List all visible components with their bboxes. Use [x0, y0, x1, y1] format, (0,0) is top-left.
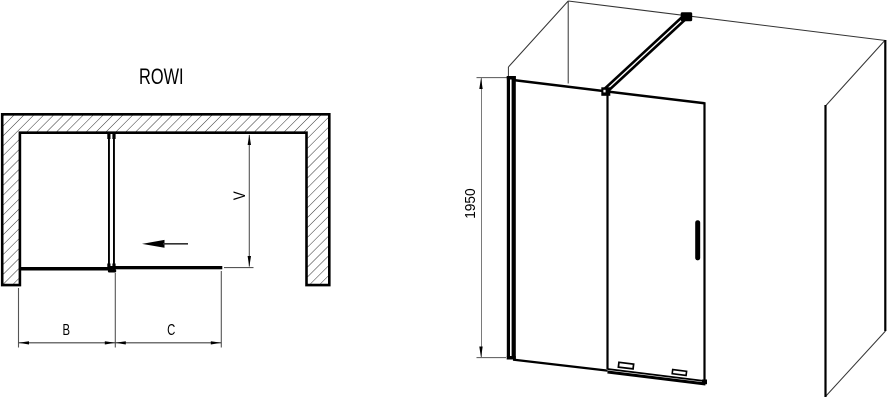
svg-text:B: B — [62, 321, 70, 338]
svg-text:1950: 1950 — [463, 188, 480, 219]
svg-text:C: C — [167, 321, 175, 338]
svg-text:ROWI: ROWI — [139, 65, 184, 90]
svg-text:V: V — [232, 191, 250, 200]
